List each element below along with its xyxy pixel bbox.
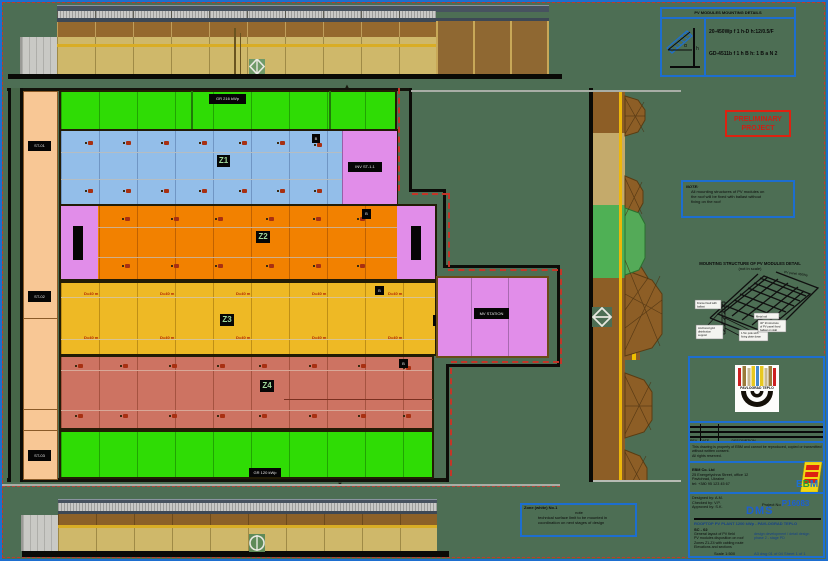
svg-text:Anchored grid: Anchored grid [698, 326, 715, 330]
svg-text:PAVLOGRAD TEPLO: PAVLOGRAD TEPLO [740, 386, 774, 390]
svg-text:ballast: ballast [697, 305, 705, 309]
svg-text:of PV panel fixed: of PV panel fixed [760, 325, 781, 329]
svg-text:fixing plate down: fixing plate down [741, 335, 762, 339]
svg-text:40° tilt structure: 40° tilt structure [760, 321, 779, 325]
svg-text:1.5m pole with: 1.5m pole with [741, 331, 759, 335]
svg-text:h: h [696, 46, 699, 52]
svg-text:Frame fixed with: Frame fixed with [697, 301, 717, 305]
svg-text:Metal rail: Metal rail [756, 315, 767, 319]
svg-text:support: support [698, 333, 707, 337]
svg-text:EBM: EBM [796, 479, 818, 490]
svg-text:ballast on slab: ballast on slab [760, 328, 778, 332]
svg-text:α: α [684, 43, 687, 49]
svg-text:distribution: distribution [698, 330, 712, 334]
svg-text:(not in scale): (not in scale) [739, 266, 763, 271]
